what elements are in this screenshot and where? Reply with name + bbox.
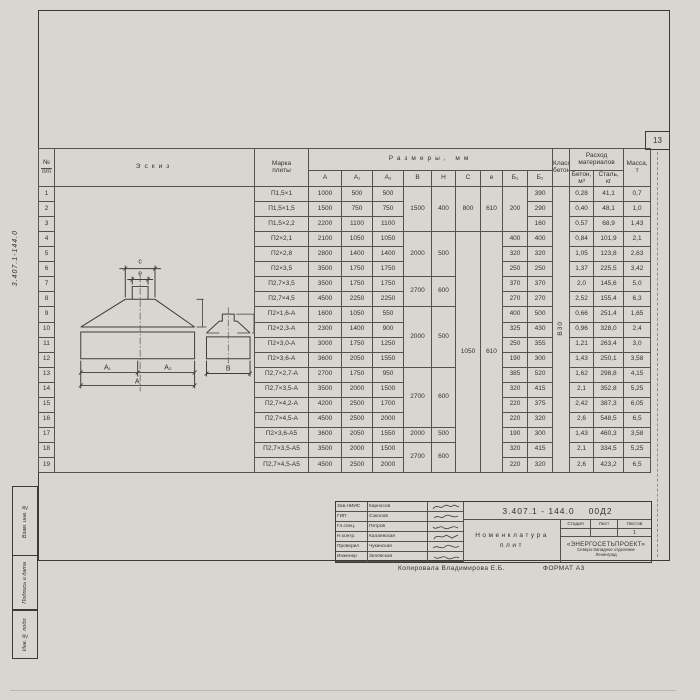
cell-a1: 2250 — [342, 292, 373, 307]
cell-a: 3000 — [309, 337, 342, 352]
cell-b1: 220 — [503, 458, 528, 473]
cell-n: 14 — [39, 382, 55, 397]
cell-b1: 370 — [503, 277, 528, 292]
cell-a2: 900 — [373, 322, 404, 337]
format-label: ФОРМАТ А3 — [543, 565, 585, 572]
cell-marka: П2×3,6-А5 — [255, 427, 309, 442]
cell-a: 1000 — [309, 187, 342, 202]
cell-n: 9 — [39, 307, 55, 322]
sketch-label-a1: A₁ — [104, 365, 112, 372]
cell-massa: 3,58 — [624, 427, 651, 442]
cell-b: 2700 — [404, 367, 432, 427]
signature-scribble — [432, 553, 460, 561]
signature — [428, 532, 464, 542]
margin-doc-number: 3.407.1-144.0 — [12, 230, 30, 350]
cell-b2: 375 — [528, 397, 553, 412]
stamp-box-inv: Инв. № подл. — [12, 609, 38, 659]
cell-b1: 250 — [503, 262, 528, 277]
cell-stal: 155,4 — [594, 292, 624, 307]
cell-a: 3600 — [309, 352, 342, 367]
nomenclature-table: № п/п Эскиз Марка плиты Размеры, мм Клас… — [38, 148, 651, 473]
cell-stal: 41,1 — [594, 187, 624, 202]
concrete-class-label: В30 — [558, 321, 565, 336]
cell-massa: 3,58 — [624, 352, 651, 367]
cell-a: 3500 — [309, 262, 342, 277]
cell-b1: 400 — [503, 307, 528, 322]
cell-b2: 520 — [528, 367, 553, 382]
cell-b: 2700 — [404, 442, 432, 472]
cell-a: 1500 — [309, 202, 342, 217]
page-number: 13 — [653, 136, 662, 145]
cell-a: 2700 — [309, 367, 342, 382]
signature — [428, 552, 464, 562]
title-block: Зав.НИИС Карносов ГИП Соколов Гл.спец. П… — [335, 501, 652, 563]
cell-h: 500 — [432, 427, 456, 442]
cell-b2: 415 — [528, 382, 553, 397]
header-klass: Класс бетона — [553, 149, 570, 187]
cell-b1: 320 — [503, 382, 528, 397]
cell-massa: 3,42 — [624, 262, 651, 277]
sketch-label-b: B — [225, 366, 230, 373]
stage-value-row: 1 — [561, 529, 651, 537]
cell-n: 13 — [39, 367, 55, 382]
cell-b1: 270 — [503, 292, 528, 307]
cell-h: 500 — [432, 232, 456, 277]
cell-b2: 320 — [528, 247, 553, 262]
cell-a: 3500 — [309, 277, 342, 292]
cell-marka: П2,7×3,5-А5 — [255, 442, 309, 457]
organization-box: «ЭНЕРГОСЕТЬПРОЕКТ» Северо-Западное отдел… — [561, 537, 651, 562]
cell-a2: 1050 — [373, 232, 404, 247]
cell-a: 4200 — [309, 397, 342, 412]
header-dim-c: C — [456, 171, 481, 187]
cell-stal: 423,2 — [594, 458, 624, 473]
cell-a1: 500 — [342, 187, 373, 202]
cell-beton: 2,6 — [570, 458, 594, 473]
signature-scribble — [432, 513, 460, 521]
cell-a1: 2050 — [342, 352, 373, 367]
cell-b1: 325 — [503, 322, 528, 337]
cell-b2: 160 — [528, 217, 553, 232]
cell-a2: 1750 — [373, 262, 404, 277]
cell-a2: 2000 — [373, 458, 404, 473]
header-dim-h: H — [432, 171, 456, 187]
cell-e: 610 — [481, 187, 503, 232]
cell-stal: 48,1 — [594, 202, 624, 217]
cell-a2: 2000 — [373, 412, 404, 427]
header-dim-b2: Б₂ — [528, 171, 553, 187]
cell-b2: 250 — [528, 262, 553, 277]
cell-beton: 1,21 — [570, 337, 594, 352]
cell-stal: 460,3 — [594, 427, 624, 442]
sketch-label-e: e — [138, 271, 142, 278]
signature-table: Зав.НИИС Карносов ГИП Соколов Гл.спец. П… — [336, 502, 464, 562]
plate-section-sketch: c e A₁ A₂ A B 100 — [56, 187, 254, 472]
cell-a: 3600 — [309, 427, 342, 442]
sketch-label-a: A — [134, 378, 139, 385]
sketch-label-c: c — [138, 259, 142, 266]
cell-n: 18 — [39, 442, 55, 457]
cell-a: 1600 — [309, 307, 342, 322]
cell-b1: 190 — [503, 427, 528, 442]
cell-massa: 5,25 — [624, 442, 651, 457]
cell-b: 2700 — [404, 277, 432, 307]
signature-scribble — [432, 523, 460, 531]
stage-header-row: Стадия Лист Листов — [561, 520, 651, 529]
cell-a2: 1750 — [373, 277, 404, 292]
cell-stal: 263,4 — [594, 337, 624, 352]
cell-a2: 950 — [373, 367, 404, 382]
cell-a1: 2050 — [342, 427, 373, 442]
role-label: Гл.спец. — [336, 522, 368, 532]
cell-massa: 6,3 — [624, 292, 651, 307]
cell-a: 4500 — [309, 412, 342, 427]
cell-massa: 2,63 — [624, 247, 651, 262]
cell-b: 2000 — [404, 307, 432, 367]
cell-a2: 1550 — [373, 427, 404, 442]
cell-beton: 1,62 — [570, 367, 594, 382]
cell-marka: П2,7×4,5-А5 — [255, 458, 309, 473]
cell-beton: 0,84 — [570, 232, 594, 247]
document-number: 3.407.1 - 144.0 00Д2 — [464, 502, 651, 520]
cell-stal: 548,5 — [594, 412, 624, 427]
margin-stamp-column: Взам. инв. № Подпись и дата Инв. № подл. — [12, 487, 38, 659]
cell-h: 600 — [432, 367, 456, 427]
header-massa: Масса, т — [624, 149, 651, 187]
header-dim-b1: Б₁ — [503, 171, 528, 187]
cell-marka: П2,7×4,5-А — [255, 412, 309, 427]
cell-a: 2300 — [309, 322, 342, 337]
cell-stal: 328,0 — [594, 322, 624, 337]
cell-marka: П2,7×2,7-А — [255, 367, 309, 382]
cell-b1: 200 — [503, 187, 528, 232]
cell-marka: П1,5×2,2 — [255, 217, 309, 232]
cell-e: 610 — [481, 232, 503, 473]
header-dim-e: e — [481, 171, 503, 187]
cell-n: 7 — [39, 277, 55, 292]
cell-b2: 370 — [528, 277, 553, 292]
cell-n: 11 — [39, 337, 55, 352]
header-beton: Бетон, м³ — [570, 171, 594, 187]
cell-b2: 390 — [528, 187, 553, 202]
cell-b1: 385 — [503, 367, 528, 382]
cell-b2: 400 — [528, 232, 553, 247]
cell-massa: 6,5 — [624, 412, 651, 427]
cell-beton: 2,1 — [570, 442, 594, 457]
cell-b2: 290 — [528, 202, 553, 217]
cell-marka: П2×3,0-А — [255, 337, 309, 352]
cell-marka: П2,7×3,5-А — [255, 382, 309, 397]
sheets-value: 1 — [618, 529, 651, 537]
cell-marka: П2×1,6-А — [255, 307, 309, 322]
cell-n: 3 — [39, 217, 55, 232]
person-name: Калаевская — [368, 532, 428, 542]
cell-n: 8 — [39, 292, 55, 307]
copied-by: Копировала Владимирова Е.Б. — [398, 565, 505, 572]
cell-b: 1500 — [404, 187, 432, 232]
cell-marka: П2×3,6-А — [255, 352, 309, 367]
person-name: Петров — [368, 522, 428, 532]
cell-stal: 68,9 — [594, 217, 624, 232]
cell-a1: 1750 — [342, 367, 373, 382]
cell-beton: 0,40 — [570, 202, 594, 217]
cell-beton: 1,43 — [570, 427, 594, 442]
cell-massa: 6,05 — [624, 397, 651, 412]
cell-stal: 250,1 — [594, 352, 624, 367]
cell-a1: 1750 — [342, 277, 373, 292]
cell-massa: 2,4 — [624, 322, 651, 337]
cell-marka: П2,7×4,2-А — [255, 397, 309, 412]
cell-a1: 1100 — [342, 217, 373, 232]
drawing-sheet: { "sheet": { "page_number": "13" }, "mar… — [0, 0, 700, 700]
header-stal: Сталь, кг — [594, 171, 624, 187]
cell-b1: 220 — [503, 412, 528, 427]
cell-a: 4500 — [309, 292, 342, 307]
cell-beton: 2,42 — [570, 397, 594, 412]
cell-beton: 2,6 — [570, 412, 594, 427]
cell-b: 2000 — [404, 427, 432, 442]
cell-stal: 101,9 — [594, 232, 624, 247]
cell-stal: 298,8 — [594, 367, 624, 382]
signature — [428, 512, 464, 522]
cell-beton: 1,05 — [570, 247, 594, 262]
cell-b2: 320 — [528, 458, 553, 473]
cell-n: 10 — [39, 322, 55, 337]
cell-beton: 0,66 — [570, 307, 594, 322]
cell-a: 3500 — [309, 382, 342, 397]
cell-a2: 750 — [373, 202, 404, 217]
signature — [428, 522, 464, 532]
cell-b2: 270 — [528, 292, 553, 307]
cell-stal: 387,3 — [594, 397, 624, 412]
sketch-cell: c e A₁ A₂ A B 100 — [55, 187, 255, 473]
signature-scribble — [432, 543, 460, 551]
role-label: Инженер — [336, 552, 368, 562]
role-label: Н.контр. — [336, 532, 368, 542]
cell-n: 4 — [39, 232, 55, 247]
cell-b2: 430 — [528, 322, 553, 337]
cell-h: 600 — [432, 277, 456, 307]
cell-n: 12 — [39, 352, 55, 367]
cell-stal: 225,5 — [594, 262, 624, 277]
cell-h: 500 — [432, 307, 456, 367]
cell-a1: 1750 — [342, 262, 373, 277]
cell-massa: 1,65 — [624, 307, 651, 322]
cell-a1: 2000 — [342, 382, 373, 397]
cell-a1: 2000 — [342, 442, 373, 457]
header-dim-a1: A₁ — [342, 171, 373, 187]
cell-n: 2 — [39, 202, 55, 217]
cell-a: 2100 — [309, 232, 342, 247]
cell-b1: 220 — [503, 397, 528, 412]
person-name: Зелевская — [368, 552, 428, 562]
person-name: Карносов — [368, 502, 428, 512]
cell-marka: П2×2,8 — [255, 247, 309, 262]
signature — [428, 542, 464, 552]
cell-a1: 2500 — [342, 412, 373, 427]
cell-marka: П1,5×1 — [255, 187, 309, 202]
cell-b2: 500 — [528, 307, 553, 322]
fold-line — [657, 152, 658, 557]
sketch-label-a2: A₂ — [164, 365, 172, 372]
cell-massa: 0,7 — [624, 187, 651, 202]
signature — [428, 502, 464, 512]
cell-b2: 320 — [528, 412, 553, 427]
cell-beton: 2,52 — [570, 292, 594, 307]
cell-massa: 3,0 — [624, 337, 651, 352]
cell-beton: 0,28 — [570, 187, 594, 202]
cell-n: 15 — [39, 397, 55, 412]
cell-n: 6 — [39, 262, 55, 277]
header-num: № п/п — [39, 149, 55, 187]
cell-a2: 550 — [373, 307, 404, 322]
footer-note: Копировала Владимирова Е.Б. ФОРМАТ А3 — [398, 565, 585, 572]
cell-n: 5 — [39, 247, 55, 262]
cell-stal: 251,4 — [594, 307, 624, 322]
cell-beton: 0,57 — [570, 217, 594, 232]
cell-a2: 1500 — [373, 382, 404, 397]
cell-a1: 1750 — [342, 337, 373, 352]
cell-b1: 320 — [503, 247, 528, 262]
cell-a2: 1500 — [373, 442, 404, 457]
header-eskiz: Эскиз — [55, 149, 255, 187]
cell-stal: 352,8 — [594, 382, 624, 397]
cell-a: 2200 — [309, 217, 342, 232]
cell-n: 19 — [39, 458, 55, 473]
cell-marka: П2×2,3-А — [255, 322, 309, 337]
cell-klass: В30 — [553, 187, 570, 473]
cell-b1: 400 — [503, 232, 528, 247]
cell-marka: П2,7×4,5 — [255, 292, 309, 307]
cell-a2: 2250 — [373, 292, 404, 307]
cell-stal: 334,5 — [594, 442, 624, 457]
cell-beton: 1,37 — [570, 262, 594, 277]
cell-b: 2000 — [404, 232, 432, 277]
cell-a2: 1550 — [373, 352, 404, 367]
header-dim-b: B — [404, 171, 432, 187]
cell-massa: 4,15 — [624, 367, 651, 382]
cell-b2: 355 — [528, 337, 553, 352]
cell-a1: 2500 — [342, 397, 373, 412]
cell-massa: 2,1 — [624, 232, 651, 247]
cell-beton: 2,1 — [570, 382, 594, 397]
cell-a1: 2500 — [342, 458, 373, 473]
cell-h: 600 — [432, 442, 456, 472]
cell-massa: 1,0 — [624, 202, 651, 217]
cell-beton: 2,0 — [570, 277, 594, 292]
role-label: ГИП — [336, 512, 368, 522]
cell-marka: П2×3,5 — [255, 262, 309, 277]
cell-a1: 1400 — [342, 247, 373, 262]
cell-b1: 320 — [503, 442, 528, 457]
cell-a2: 1700 — [373, 397, 404, 412]
role-label: Проверил — [336, 542, 368, 552]
signature-scribble — [432, 503, 460, 511]
cell-b1: 190 — [503, 352, 528, 367]
cell-a1: 1050 — [342, 232, 373, 247]
header-razmery: Размеры, мм — [309, 149, 553, 171]
cell-a1: 750 — [342, 202, 373, 217]
cell-b2: 300 — [528, 427, 553, 442]
cell-b2: 300 — [528, 352, 553, 367]
person-name: Соколов — [368, 512, 428, 522]
cell-marka: П2×2,1 — [255, 232, 309, 247]
person-name: Чукинская — [368, 542, 428, 552]
cell-h: 400 — [432, 187, 456, 232]
cell-beton: 0,96 — [570, 322, 594, 337]
cell-massa: 5,25 — [624, 382, 651, 397]
sheet-bottom-edge — [10, 690, 676, 691]
cell-a: 2800 — [309, 247, 342, 262]
signature-scribble — [432, 533, 460, 541]
header-marka: Марка плиты — [255, 149, 309, 187]
cell-a1: 1050 — [342, 307, 373, 322]
cell-a2: 500 — [373, 187, 404, 202]
cell-c: 800 — [456, 187, 481, 232]
cell-stal: 145,6 — [594, 277, 624, 292]
cell-a2: 1250 — [373, 337, 404, 352]
stamp-box-podpis: Подпись и дата — [12, 555, 38, 611]
cell-n: 16 — [39, 412, 55, 427]
cell-n: 17 — [39, 427, 55, 442]
cell-n: 1 — [39, 187, 55, 202]
drawing-title: Номенклатура плит — [464, 520, 561, 562]
role-label: Зав.НИИС — [336, 502, 368, 512]
header-dim-a2: A₂ — [373, 171, 404, 187]
cell-a1: 1400 — [342, 322, 373, 337]
cell-b1: 250 — [503, 337, 528, 352]
cell-a: 4500 — [309, 458, 342, 473]
cell-marka: П1,5×1,5 — [255, 202, 309, 217]
cell-massa: 5,0 — [624, 277, 651, 292]
cell-a2: 1100 — [373, 217, 404, 232]
cell-marka: П2,7×3,5 — [255, 277, 309, 292]
header-rashod: Расход материалов — [570, 149, 624, 171]
cell-a: 3500 — [309, 442, 342, 457]
cell-a2: 1400 — [373, 247, 404, 262]
cell-stal: 123,8 — [594, 247, 624, 262]
stamp-box-vzam: Взам. инв. № — [12, 486, 38, 556]
cell-massa: 1,43 — [624, 217, 651, 232]
header-dim-a: A — [309, 171, 342, 187]
cell-massa: 6,5 — [624, 458, 651, 473]
cell-c: 1050 — [456, 232, 481, 473]
cell-beton: 1,43 — [570, 352, 594, 367]
cell-b2: 415 — [528, 442, 553, 457]
